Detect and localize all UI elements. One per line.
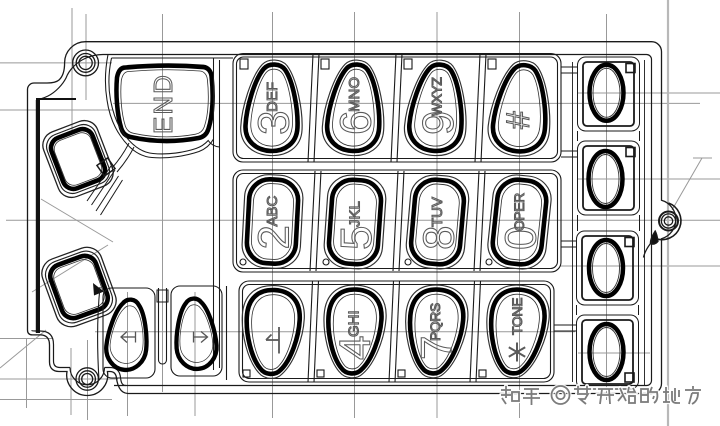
svg-text:ABC: ABC bbox=[264, 195, 281, 226]
svg-text:TONE: TONE bbox=[509, 298, 525, 335]
svg-text:4: 4 bbox=[331, 336, 380, 360]
svg-text:8: 8 bbox=[415, 226, 464, 250]
svg-text:3: 3 bbox=[250, 111, 299, 135]
svg-text:5: 5 bbox=[332, 226, 381, 250]
svg-text:#: # bbox=[500, 111, 536, 129]
svg-text:GHI: GHI bbox=[346, 310, 363, 337]
svg-text:DEF: DEF bbox=[264, 82, 281, 112]
svg-text:WXYZ: WXYZ bbox=[429, 77, 445, 116]
svg-text:2: 2 bbox=[250, 225, 299, 249]
svg-text:JKL: JKL bbox=[347, 201, 364, 227]
svg-text:OPER: OPER bbox=[511, 193, 527, 231]
svg-text:6: 6 bbox=[332, 111, 381, 135]
svg-text:MNO: MNO bbox=[346, 77, 363, 112]
svg-text:TUV: TUV bbox=[429, 197, 446, 227]
svg-text:END: END bbox=[148, 73, 178, 134]
svg-text:PQRS: PQRS bbox=[427, 303, 443, 341]
